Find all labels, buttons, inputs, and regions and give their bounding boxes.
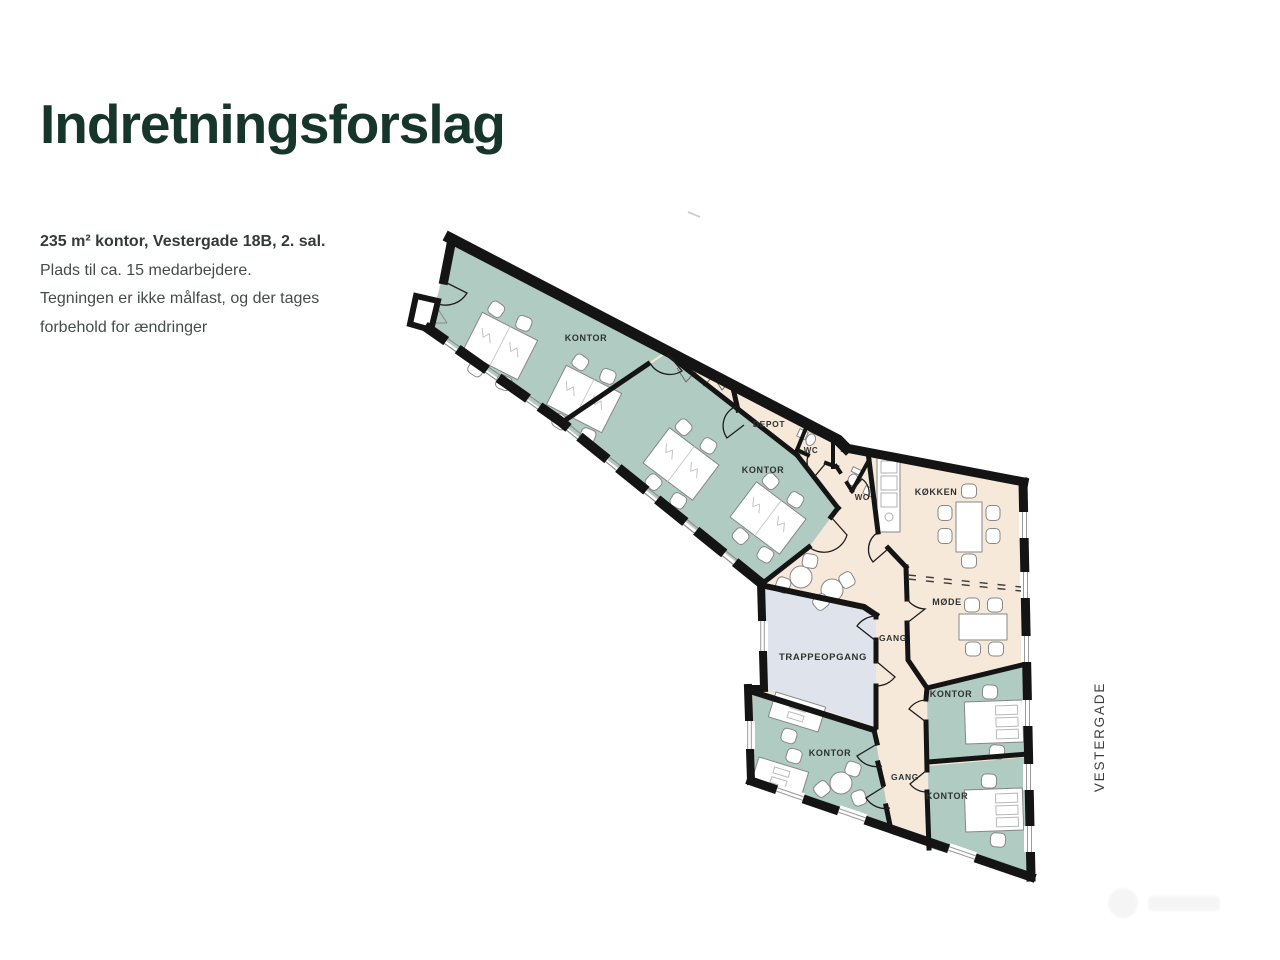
watermark	[1108, 886, 1228, 926]
kitchen-counter	[877, 456, 900, 532]
slide: Indretningsforslag 235 m² kontor, Vester…	[0, 0, 1280, 960]
label-kontor-right-bottom: KONTOR	[926, 791, 968, 801]
street-label: VESTERGADE	[1092, 682, 1107, 792]
label-gang-upper: GANG	[879, 633, 907, 643]
label-gang-lower: GANG	[891, 772, 919, 782]
watermark-text-blob	[1148, 896, 1220, 911]
label-depot: DEPOT	[753, 419, 785, 429]
label-kontor-right-top: KONTOR	[930, 689, 972, 699]
floor-plan: KONTOR KONTOR DEPOT WC WC KØKKEN MØDE GA…	[0, 0, 1280, 960]
label-moede: MØDE	[932, 597, 961, 607]
label-trappeopgang: TRAPPEOPGANG	[779, 652, 867, 663]
label-koekken: KØKKEN	[915, 487, 958, 497]
label-wc-1: WC	[804, 446, 819, 455]
watermark-logo-icon	[1108, 888, 1138, 918]
label-kontor-bottom-left: KONTOR	[809, 748, 851, 758]
label-wc-2: WC	[855, 493, 870, 502]
label-kontor-1: KONTOR	[565, 333, 607, 343]
stray-mark	[688, 212, 700, 217]
label-kontor-2: KONTOR	[742, 465, 784, 475]
